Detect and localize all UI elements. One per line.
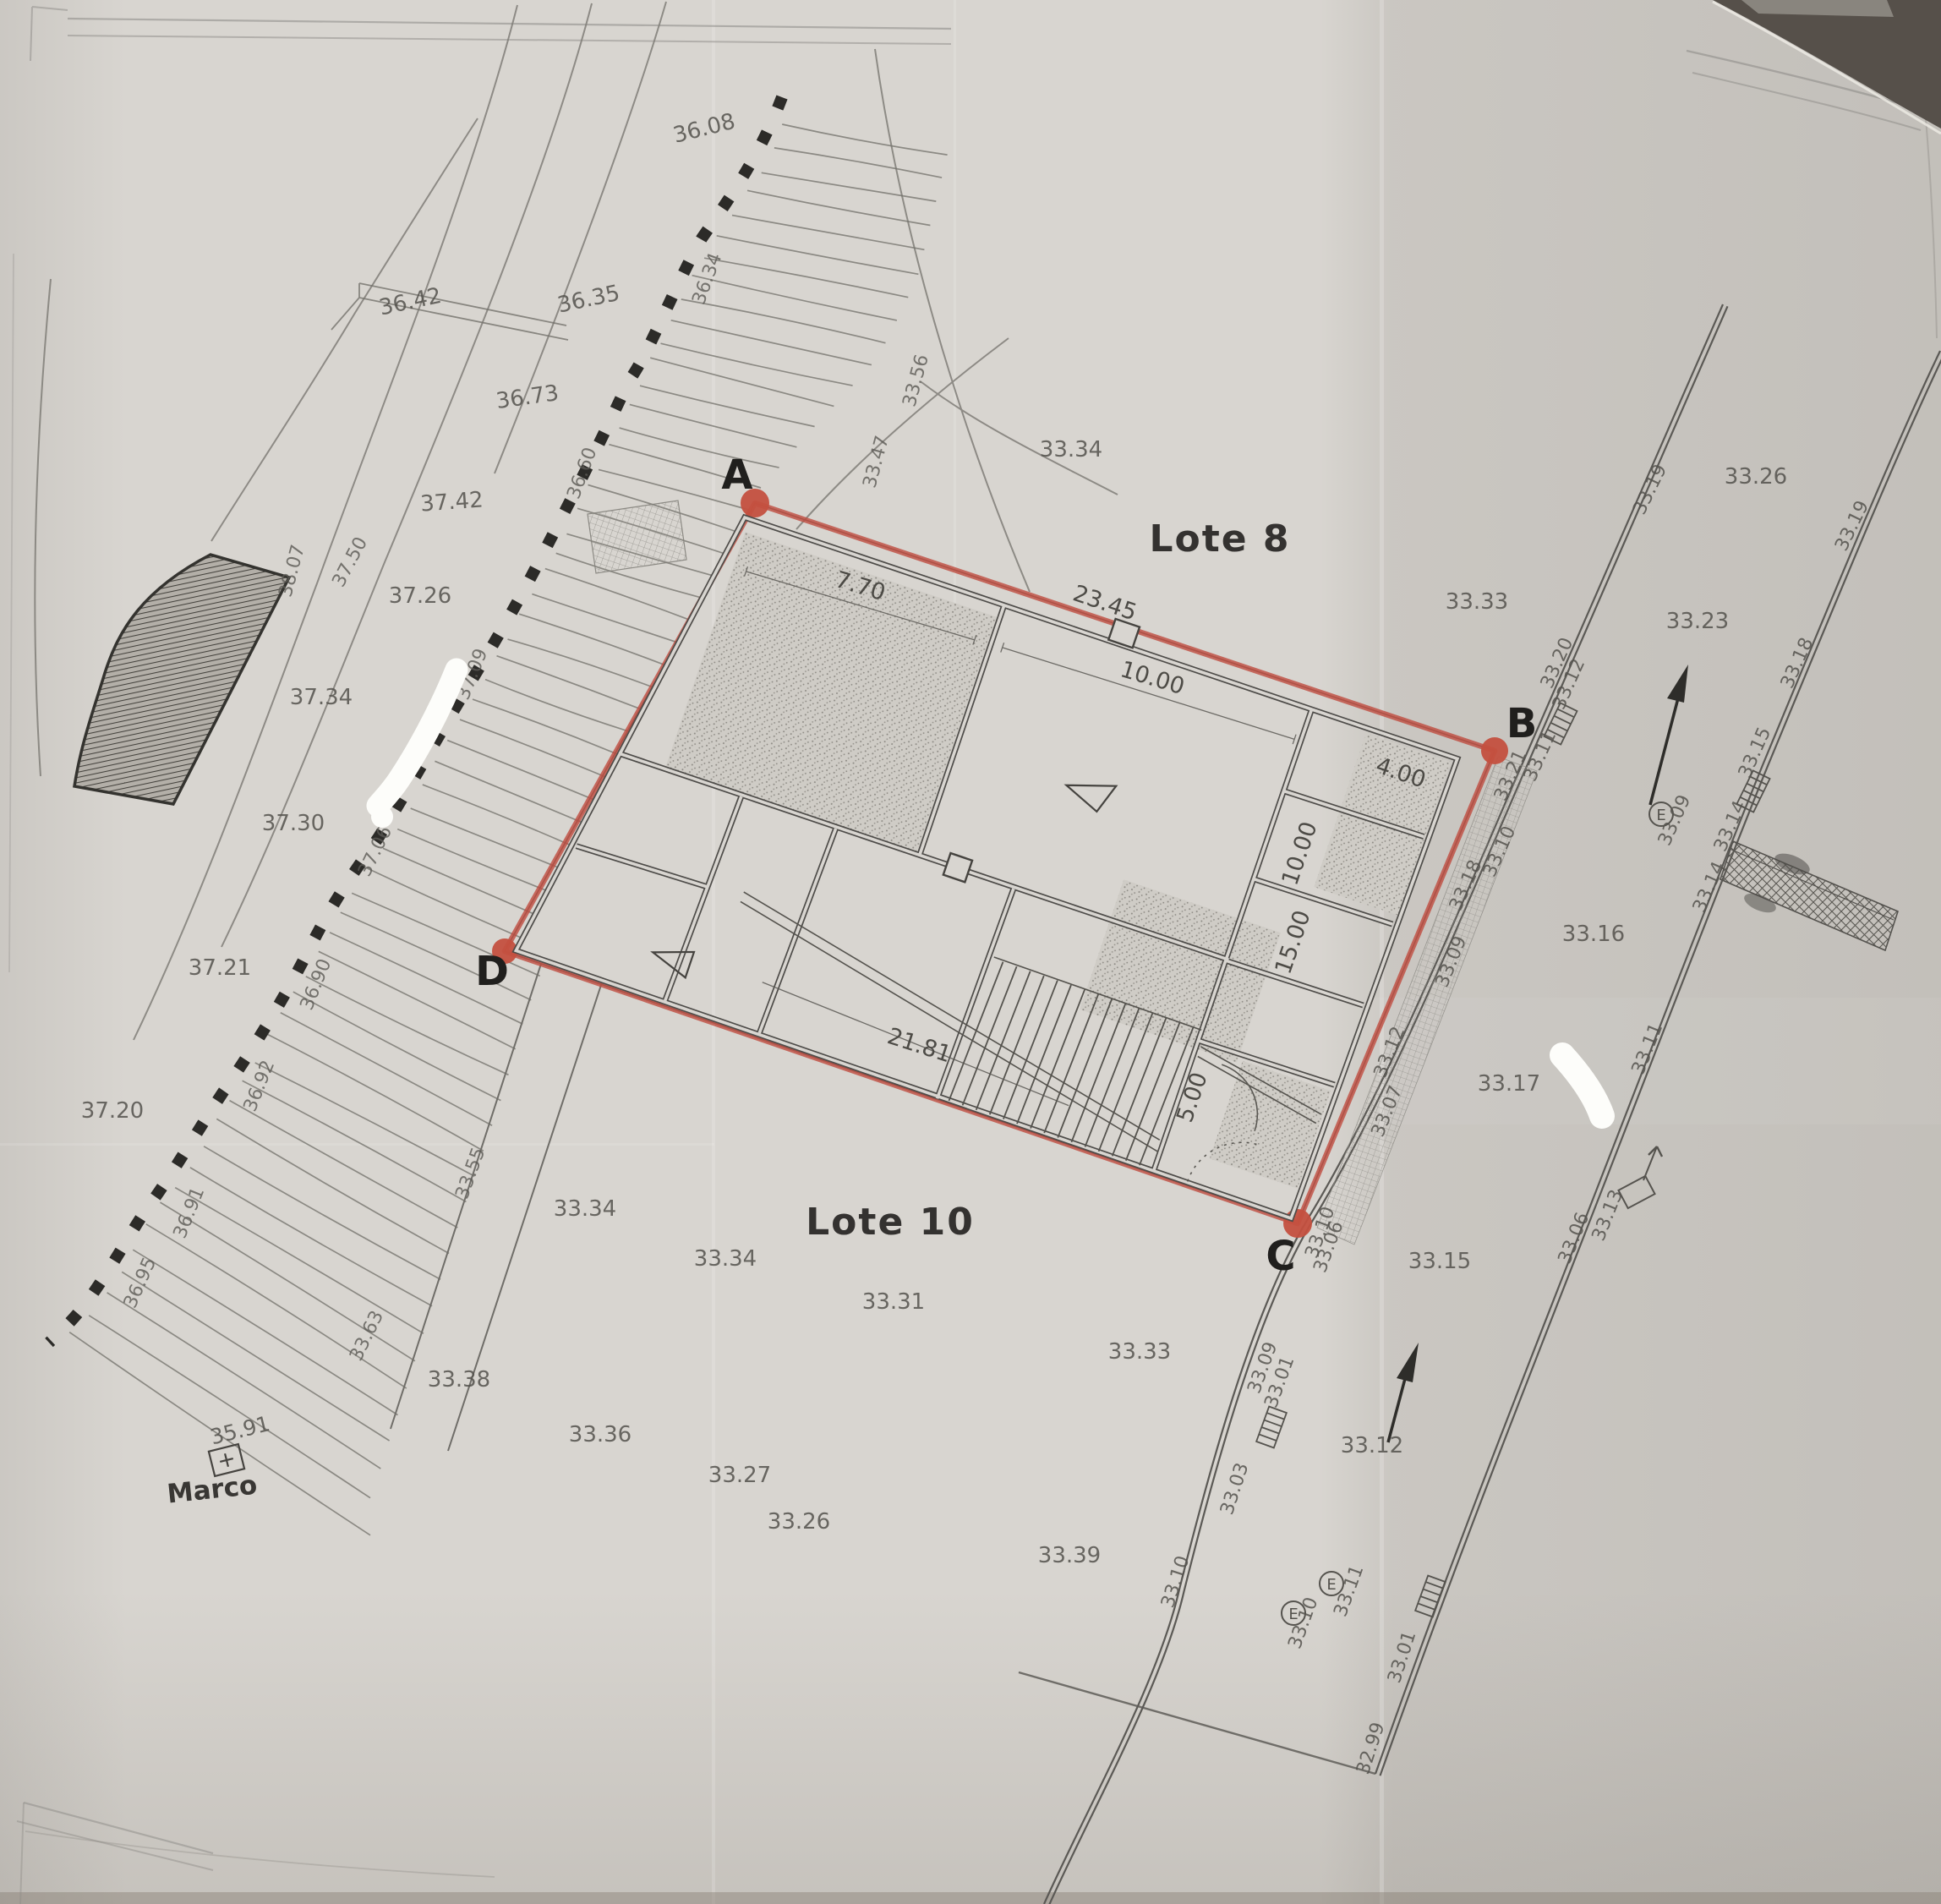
- elevation-label: 33.33: [1108, 1339, 1171, 1365]
- elevation-label: 33.33: [1446, 589, 1508, 615]
- elevation-label: 33.16: [1562, 922, 1625, 947]
- elevation-label: 37.34: [290, 685, 353, 710]
- elevation-label: 33.17: [1478, 1071, 1540, 1097]
- elevation-label: 33.34: [694, 1246, 757, 1272]
- elevation-label: 37.42: [419, 487, 484, 517]
- lot-8-label: Lote 8: [1149, 517, 1290, 561]
- corner-letter-D: D: [475, 948, 509, 995]
- elevation-label: 33.27: [708, 1463, 771, 1488]
- corner-letter-B: B: [1506, 700, 1538, 747]
- elevation-label: 33.23: [1666, 609, 1729, 634]
- elevation-label: 33.36: [569, 1422, 632, 1447]
- elevation-label: 33.38: [428, 1367, 490, 1392]
- pole-letter: E: [1656, 807, 1665, 824]
- elevation-label: 37.20: [81, 1098, 144, 1124]
- photographed-site-plan: 23.457.7010.004.0010.0015.005.0021.81 36…: [0, 0, 1941, 1904]
- elevation-label: 37.30: [262, 811, 325, 836]
- elevation-label: 33.39: [1038, 1543, 1101, 1568]
- corner-letter-A: A: [721, 451, 752, 499]
- elevation-label: 33.34: [1040, 437, 1102, 462]
- elevation-label: 33.31: [862, 1289, 925, 1315]
- elevation-label: 37.26: [389, 583, 451, 609]
- pole-letter: E: [1288, 1606, 1298, 1623]
- elevation-label: 37.21: [189, 955, 251, 981]
- lot-10-label: Lote 10: [806, 1201, 975, 1244]
- site-plan-svg: 23.457.7010.004.0010.0015.005.0021.81 36…: [0, 0, 1941, 1904]
- elevation-label: 33.26: [1725, 464, 1787, 490]
- corner-letter-C: C: [1266, 1233, 1295, 1280]
- elevation-label: 33.26: [768, 1509, 830, 1535]
- elevation-label: 33.34: [554, 1196, 616, 1222]
- elevation-label: 33.15: [1408, 1249, 1471, 1274]
- pole-letter: E: [1326, 1576, 1336, 1594]
- elevation-label: 33.12: [1341, 1433, 1403, 1458]
